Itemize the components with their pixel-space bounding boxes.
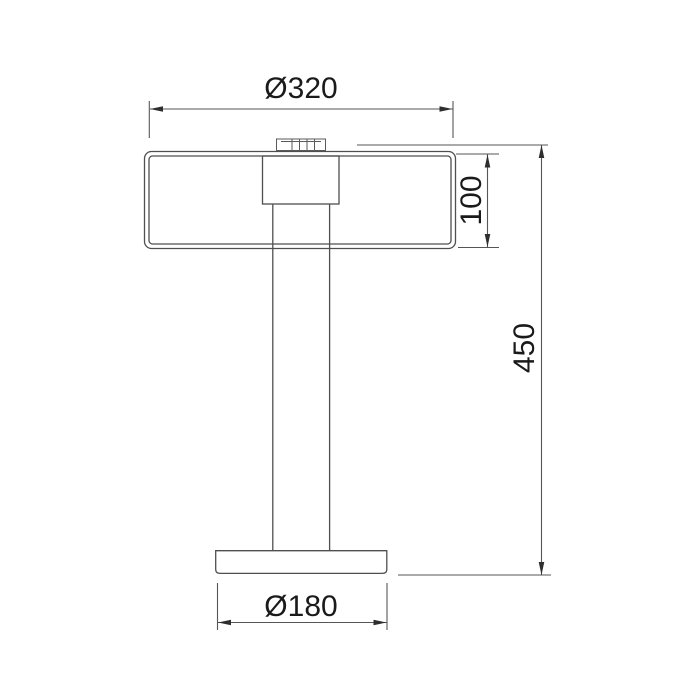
drawing-page: Ø320 100 450 Ø180 (0, 0, 676, 676)
arrowhead-bottom (485, 234, 491, 247)
technical-drawing-canvas: Ø320 100 450 Ø180 (0, 0, 676, 676)
arrowhead-top (539, 145, 545, 158)
arrowhead-right (374, 620, 387, 626)
dim-label-shade-height: 100 (455, 175, 488, 225)
arrowhead-left (218, 620, 231, 626)
base-outline (216, 551, 387, 574)
shade-inner-outline (149, 156, 451, 244)
lamp-figure (145, 139, 456, 573)
dim-label-base-diameter: Ø180 (264, 590, 337, 623)
arrowhead-right (440, 106, 453, 112)
dim-shade-diameter: Ø320 (149, 72, 453, 138)
lamp-shade (145, 152, 456, 249)
dim-base-diameter: Ø180 (218, 583, 388, 630)
shade-outer-outline (145, 152, 456, 249)
dim-label-shade-diameter: Ø320 (264, 72, 337, 105)
socket-housing (263, 156, 340, 204)
finial-outline (277, 139, 326, 151)
dim-label-total-height: 450 (508, 323, 541, 373)
finial (277, 139, 326, 151)
dim-shade-height: 100 (455, 154, 499, 248)
arrowhead-top (485, 155, 491, 168)
arrowhead-left (150, 106, 163, 112)
column (273, 204, 330, 551)
dim-total-height: 450 (357, 145, 551, 575)
arrowhead-bottom (539, 562, 545, 575)
